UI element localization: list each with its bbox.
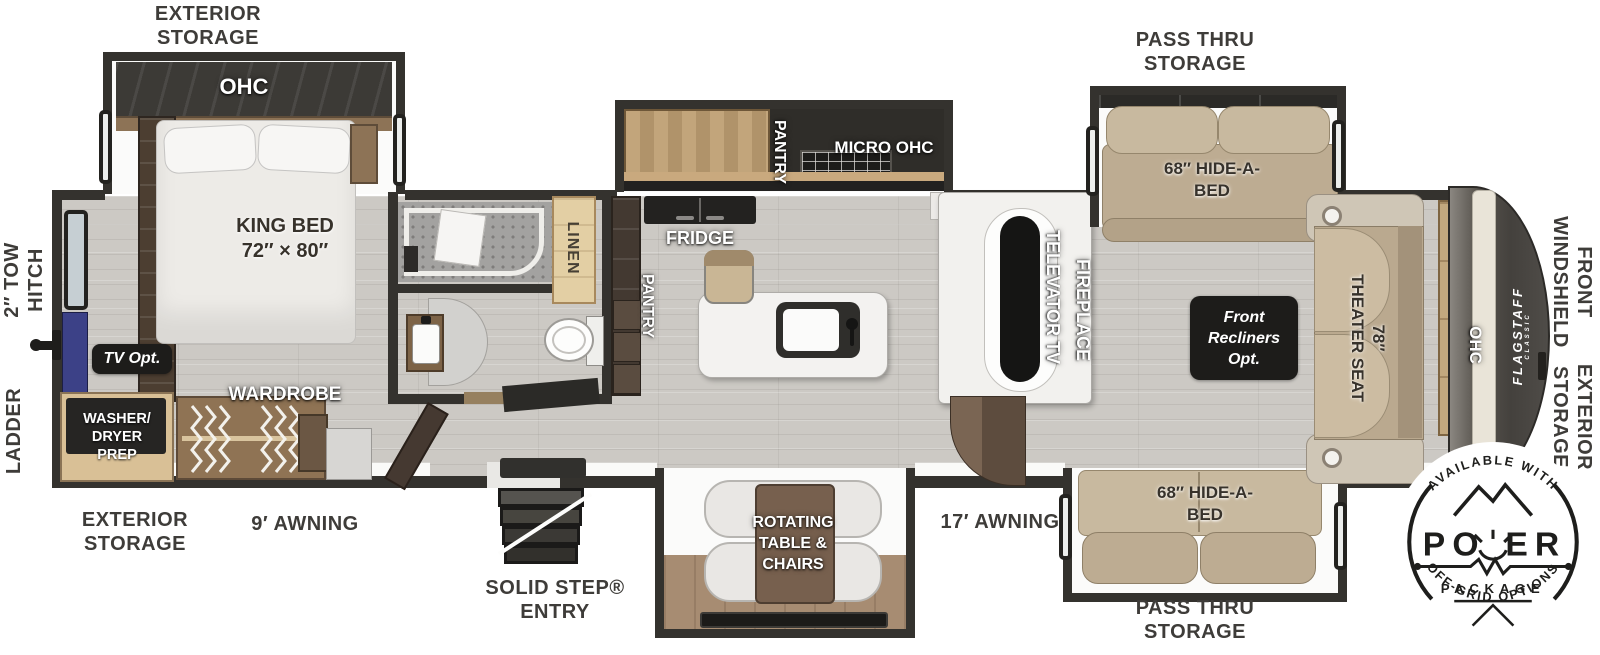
hab-bottom-window-right xyxy=(1334,502,1347,570)
label-televator-tv: TELEVATOR TV xyxy=(1043,212,1063,382)
label-line: EXTERIOR xyxy=(108,2,308,26)
shower-head xyxy=(404,246,418,272)
pantry-drawer-3 xyxy=(613,364,641,394)
hab-top-window-left xyxy=(1086,126,1099,196)
label-line: Recliners xyxy=(1208,328,1280,349)
badge-package-text: PACKAGE xyxy=(1441,581,1546,596)
slide-pantry-cabinet xyxy=(624,109,770,181)
island-sink-basin xyxy=(783,309,839,351)
label-line: STORAGE xyxy=(108,26,308,50)
label-line: STORAGE xyxy=(1075,620,1315,644)
tv-opt-badge: TV Opt. xyxy=(92,344,172,374)
front-recliners-badge: Front Recliners Opt. xyxy=(1190,296,1298,380)
label-line: CHAIRS xyxy=(713,554,873,575)
entry-mat xyxy=(500,458,586,478)
label-line: PANTRY xyxy=(638,274,656,338)
label-line: ENTRY xyxy=(460,600,650,624)
label-line: Front xyxy=(1224,307,1265,328)
label-line: HITCH xyxy=(24,218,48,342)
cap-latch xyxy=(1538,352,1546,380)
label-line: 68″ HIDE-A- xyxy=(1122,158,1302,180)
label-micro-ohc: MICRO OHC xyxy=(814,138,954,158)
label-line: TELEVATOR TV xyxy=(1043,230,1064,364)
label-front-windshield: FRONT WINDSHIELD xyxy=(1548,207,1596,357)
step-4 xyxy=(504,545,578,564)
hab-bottom-back-cushion-left xyxy=(1082,532,1198,584)
shower-towel xyxy=(434,209,487,267)
label-awning-17: 17′ AWNING xyxy=(905,510,1095,534)
hab-top-back-cushion-left xyxy=(1106,106,1218,154)
label-exterior-storage-top: EXTERIOR STORAGE xyxy=(108,2,308,50)
top-wall-1 xyxy=(52,190,105,200)
label-tow-hitch: 2″ TOW HITCH xyxy=(0,218,48,342)
bedroom-slide-window-left xyxy=(99,110,112,184)
vanity-faucet-icon xyxy=(421,316,431,324)
label-line: BED xyxy=(1115,504,1295,526)
hab-top-window-right xyxy=(1332,120,1345,192)
label-awning-9: 9′ AWNING xyxy=(205,512,405,536)
label-line: STORAGE xyxy=(1075,52,1315,76)
label-line: WASHER/ xyxy=(83,410,151,428)
label-line: WINDSHIELD xyxy=(1548,207,1572,357)
label-hide-a-bed-top: 68″ HIDE-A- BED xyxy=(1122,158,1302,202)
brand-sub: CLASSIC xyxy=(1525,312,1531,359)
label-line: FRONT xyxy=(1572,207,1596,357)
label-rotating-table: ROTATING TABLE & CHAIRS xyxy=(713,512,873,575)
brand-name: FLAGSTAFF xyxy=(1510,287,1525,386)
cupholder-icon-top xyxy=(1322,206,1342,226)
king-bed-pillow-right xyxy=(257,124,351,175)
label-line: 17′ AWNING xyxy=(905,510,1095,534)
label-wardrobe: WARDROBE xyxy=(215,384,355,406)
bedroom-slide-window-right xyxy=(393,114,406,186)
label-washer-dryer: WASHER/ DRYER PREP xyxy=(60,394,174,480)
label-line: PASS THRU xyxy=(1075,596,1315,620)
label-solid-step: SOLID STEP® ENTRY xyxy=(460,576,650,624)
bathroom-wall-left xyxy=(388,192,398,404)
label-king-bed: KING BED 72″ × 80″ xyxy=(195,214,375,264)
label-ohc-bedroom: OHC xyxy=(184,74,304,100)
label-pantry-main: PANTRY xyxy=(637,246,657,366)
king-bed-pillow-left xyxy=(163,124,257,175)
label-ohc-front: OHC xyxy=(1465,315,1485,375)
bedroom-nightstand xyxy=(326,428,372,480)
label-fireplace: FIREPLACE xyxy=(1073,235,1093,385)
bar-stool-back xyxy=(704,250,754,266)
label-line: SOLID STEP® xyxy=(460,576,650,600)
label-line: 78″ xyxy=(1368,324,1389,351)
brand-logo: FLAGSTAFF CLASSIC xyxy=(1505,271,1535,401)
badge-er-text: ER xyxy=(1505,526,1566,563)
wardrobe-drawer-box xyxy=(298,414,328,472)
theater-back-strip xyxy=(1398,226,1422,438)
label-line: TABLE & xyxy=(713,533,873,554)
label-line: 9′ AWNING xyxy=(205,512,405,536)
toilet-seat-line xyxy=(552,326,586,354)
solid-step-stairs xyxy=(498,488,584,566)
dinette-window xyxy=(700,612,888,628)
label-line: ROTATING xyxy=(713,512,873,533)
label-line: DRYER xyxy=(92,428,142,446)
bedside-shelf xyxy=(350,124,378,184)
hab-bottom-back-cushion-right xyxy=(1200,532,1316,584)
island-faucet-spout xyxy=(850,328,854,346)
hab-top-back-cushion-right xyxy=(1218,106,1330,154)
label-hide-a-bed-bottom: 68″ HIDE-A- BED xyxy=(1115,482,1295,526)
label-line: 68″ HIDE-A- xyxy=(1115,482,1295,504)
fridge-door-split xyxy=(699,198,701,222)
tv-screen xyxy=(1000,216,1040,382)
bathroom-wall-divider xyxy=(397,284,557,293)
cupholder-icon-bottom xyxy=(1322,448,1342,468)
label-line: 72″ × 80″ xyxy=(195,239,375,264)
power-package-badge: AVAILABLE WITH OFF-GRID OPTIONS PO ER PA… xyxy=(1391,440,1595,644)
label-linen: LINEN xyxy=(562,193,582,303)
label-pass-thru-top: PASS THRU STORAGE xyxy=(1075,28,1315,76)
rv-floorplan-diagram: FLAGSTAFF CLASSIC EXTERIOR STORAGE PASS … xyxy=(0,0,1600,655)
label-line: LINEN xyxy=(563,222,581,275)
bathroom-wall-bottom-left xyxy=(388,394,464,404)
label-line: KING BED xyxy=(195,214,375,239)
label-pass-thru-bottom: PASS THRU STORAGE xyxy=(1075,596,1315,644)
label-ladder: LADDER xyxy=(2,369,26,493)
label-line: THEATER SEAT xyxy=(1347,274,1368,402)
vanity-sink xyxy=(412,324,440,364)
label-line: 2″ TOW xyxy=(0,218,24,342)
label-line: OHC xyxy=(1465,326,1485,364)
hab-top-front-bolster xyxy=(1102,218,1338,242)
label-line: BED xyxy=(1122,180,1302,202)
badge-po-text: PO xyxy=(1423,526,1486,563)
label-line: FIREPLACE xyxy=(1073,259,1094,361)
fridge-handle-right xyxy=(706,216,724,220)
bedroom-tv xyxy=(62,312,88,402)
label-line: Opt. xyxy=(1228,349,1260,370)
label-line: TV Opt. xyxy=(104,350,161,368)
label-line: PREP xyxy=(97,446,137,464)
rear-wall-window xyxy=(64,210,88,310)
label-line: LADDER xyxy=(2,369,26,493)
label-line: PASS THRU xyxy=(1075,28,1315,52)
label-line: PANTRY xyxy=(770,120,788,184)
label-theater-seat: 78″ THEATER SEAT xyxy=(1346,253,1390,423)
fridge-handle-left xyxy=(676,216,694,220)
label-fridge: FRIDGE xyxy=(640,228,760,249)
label-pantry-slide: PANTRY xyxy=(769,92,789,212)
